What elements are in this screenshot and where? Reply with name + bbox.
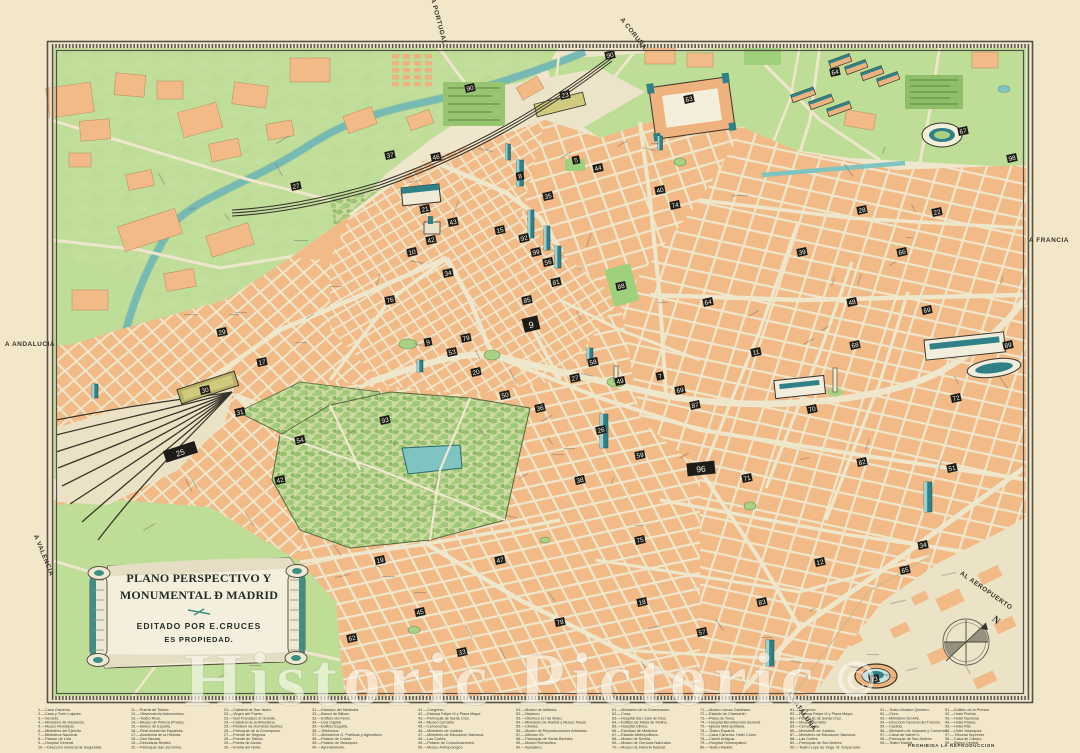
svg-text:Historic Pictoric: Historic Pictoric xyxy=(184,638,820,722)
svg-text:60.—Apeadero.: 60.—Apeadero. xyxy=(516,745,543,749)
svg-text:20.—Parroquia San Jeronimo.: 20.—Parroquia San Jeronimo. xyxy=(131,745,182,749)
svg-text:A FRANCIA: A FRANCIA xyxy=(1029,237,1069,244)
svg-text:80.—Teatro Madrid.: 80.—Teatro Madrid. xyxy=(700,745,733,749)
svg-text:PROHIBIDA LA REPRODUCCION: PROHIBIDA LA REPRODUCCION xyxy=(908,743,995,748)
svg-text:PLANO PERSPECTIVO Y: PLANO PERSPECTIVO Y xyxy=(126,571,271,585)
svg-text:C: C xyxy=(846,665,866,695)
svg-text:90.—Teatro Lope de Vega. M. Em: 90.—Teatro Lope de Vega. M. Emperador. xyxy=(790,745,861,749)
svg-text:EDITADO POR E.CRUCES: EDITADO POR E.CRUCES xyxy=(137,621,262,631)
svg-text:MONUMENTAL Đ MADRID: MONUMENTAL Đ MADRID xyxy=(120,588,278,602)
svg-text:50.—Museo Antropologico.: 50.—Museo Antropologico. xyxy=(418,745,464,749)
svg-text:96: 96 xyxy=(696,464,707,475)
svg-text:10.—Direccion General de Segur: 10.—Direccion General de Seguridad. xyxy=(38,745,102,749)
svg-text:40.—Ayuntamiento.: 40.—Ayuntamiento. xyxy=(312,745,345,749)
svg-text:A ANDALUCIA: A ANDALUCIA xyxy=(5,341,55,348)
svg-text:30.—Ermita del Norte.: 30.—Ermita del Norte. xyxy=(224,745,262,749)
svg-text:70.—Museo de Historia Natural.: 70.—Museo de Historia Natural. xyxy=(612,745,666,749)
